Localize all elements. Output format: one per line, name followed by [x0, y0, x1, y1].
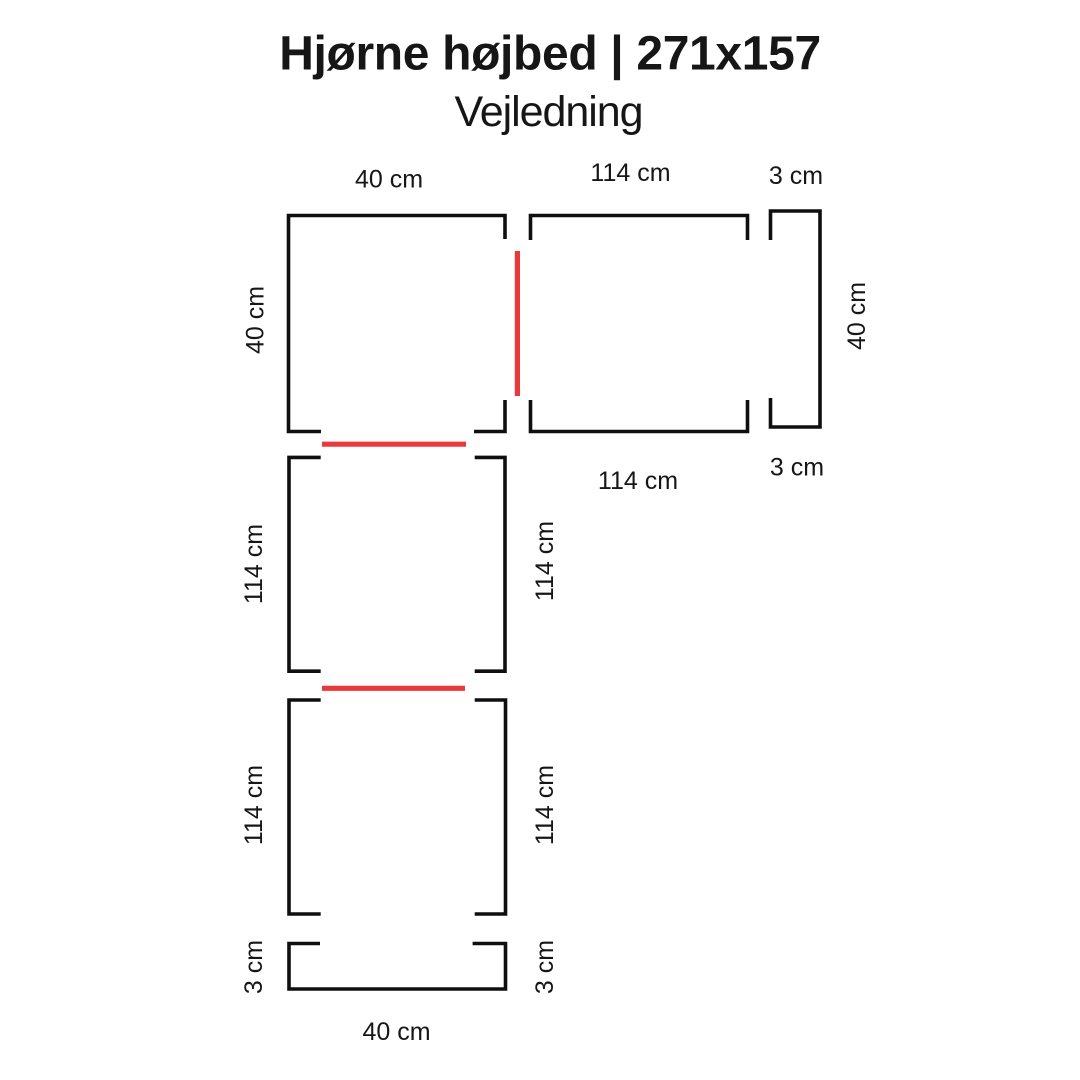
svg-text:40 cm: 40 cm — [241, 286, 269, 354]
svg-text:3 cm: 3 cm — [770, 453, 824, 481]
svg-text:114 cm: 114 cm — [240, 765, 268, 845]
svg-text:114 cm: 114 cm — [531, 521, 559, 601]
svg-text:3 cm: 3 cm — [531, 940, 559, 994]
svg-text:114 cm: 114 cm — [590, 159, 670, 187]
svg-text:Hjørne højbed | 271x157: Hjørne højbed | 271x157 — [279, 28, 821, 81]
svg-text:3 cm: 3 cm — [240, 940, 268, 994]
svg-text:40 cm: 40 cm — [355, 165, 423, 193]
svg-text:40 cm: 40 cm — [362, 1018, 430, 1046]
svg-text:114 cm: 114 cm — [531, 765, 559, 845]
svg-text:Vejledning: Vejledning — [455, 88, 643, 136]
svg-text:3 cm: 3 cm — [769, 162, 823, 190]
svg-text:114 cm: 114 cm — [598, 467, 678, 495]
svg-text:114 cm: 114 cm — [240, 524, 268, 604]
svg-text:40 cm: 40 cm — [843, 282, 871, 350]
